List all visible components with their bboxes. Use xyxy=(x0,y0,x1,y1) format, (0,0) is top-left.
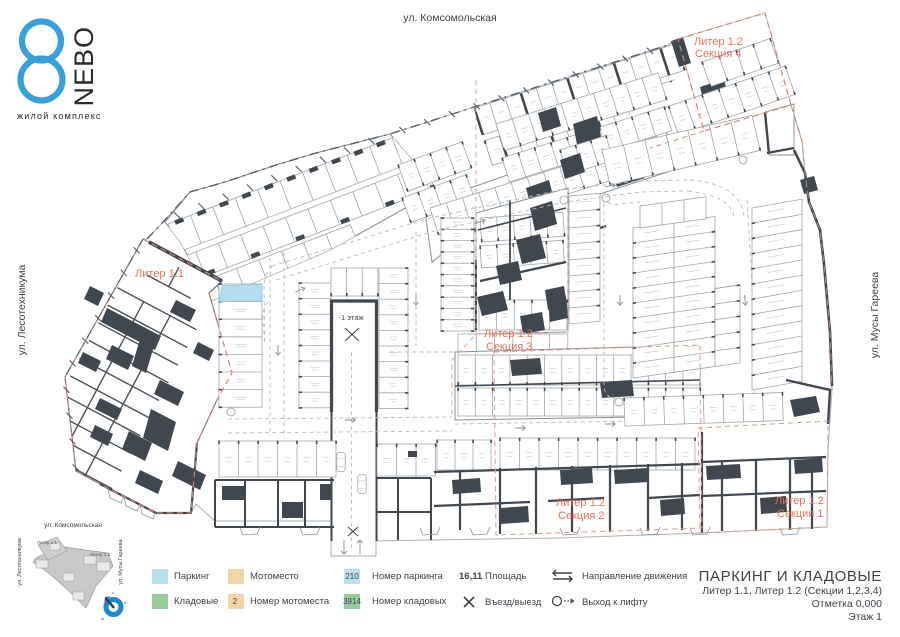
svg-text:Номер мотоместа: Номер мотоместа xyxy=(250,596,330,607)
svg-text:Литер 1.2: Литер 1.2 xyxy=(775,495,824,507)
svg-text:ул. Мусы Гареева: ул. Мусы Гареева xyxy=(869,272,881,359)
svg-text:ул. Комсомольская: ул. Комсомольская xyxy=(44,522,102,529)
svg-text:Номер паркинга: Номер паркинга xyxy=(372,571,444,582)
svg-text:жилой комплекс: жилой комплекс xyxy=(17,111,102,121)
svg-text:Секция 4: Секция 4 xyxy=(695,48,741,60)
svg-text:Секция 3: Секция 3 xyxy=(486,341,532,353)
svg-text:Литер 1.2: Литер 1.2 xyxy=(90,552,110,557)
svg-text:Литер 1.1: Литер 1.1 xyxy=(37,540,57,545)
svg-text:Отметка 0,000: Отметка 0,000 xyxy=(812,598,883,610)
svg-text:ул. Мусы Гареева: ул. Мусы Гареева xyxy=(118,538,124,584)
svg-text:2: 2 xyxy=(233,597,238,606)
svg-text:ул. Комсомольская: ул. Комсомольская xyxy=(403,12,496,24)
svg-text:3914: 3914 xyxy=(343,597,361,606)
svg-text:Площадь: Площадь xyxy=(485,571,526,582)
svg-text:Этаж 1: Этаж 1 xyxy=(848,611,882,623)
svg-text:ул. Лесотехникума: ул. Лесотехникума xyxy=(17,537,23,586)
svg-text:Литер 1.2: Литер 1.2 xyxy=(484,328,533,340)
svg-text:Номер кладовых: Номер кладовых xyxy=(372,596,447,607)
svg-text:-1 этаж: -1 этаж xyxy=(339,313,364,322)
svg-text:Литер 1.1: Литер 1.1 xyxy=(135,268,184,280)
svg-text:Литер 1.1, Литер 1.2 (Секции 1: Литер 1.1, Литер 1.2 (Секции 1,2,3,4) xyxy=(702,585,882,597)
svg-text:Литер 1.2: Литер 1.2 xyxy=(694,36,743,48)
svg-text:Въезд/выезд: Въезд/выезд xyxy=(485,597,542,608)
svg-text:Выход к лифту: Выход к лифту xyxy=(582,597,648,608)
svg-text:Паркинг: Паркинг xyxy=(174,571,210,582)
svg-text:Секция 1: Секция 1 xyxy=(777,508,823,520)
svg-text:16,11: 16,11 xyxy=(459,571,483,582)
svg-text:с: с xyxy=(112,590,114,595)
svg-text:Направление движения: Направление движения xyxy=(582,571,687,582)
svg-text:NEBO: NEBO xyxy=(69,26,99,107)
svg-text:ул. Лесотехникума: ул. Лесотехникума xyxy=(16,264,28,355)
svg-text:в: в xyxy=(124,600,126,605)
svg-text:Мотоместо: Мотоместо xyxy=(250,571,299,582)
svg-text:Кладовые: Кладовые xyxy=(174,596,218,607)
svg-text:Секция 2: Секция 2 xyxy=(558,510,604,522)
svg-text:ю: ю xyxy=(101,616,104,621)
svg-text:ПАРКИНГ И КЛАДОВЫЕ: ПАРКИНГ И КЛАДОВЫЕ xyxy=(699,568,882,585)
svg-text:210: 210 xyxy=(345,572,359,581)
svg-text:Литер 1.2: Литер 1.2 xyxy=(556,497,605,509)
